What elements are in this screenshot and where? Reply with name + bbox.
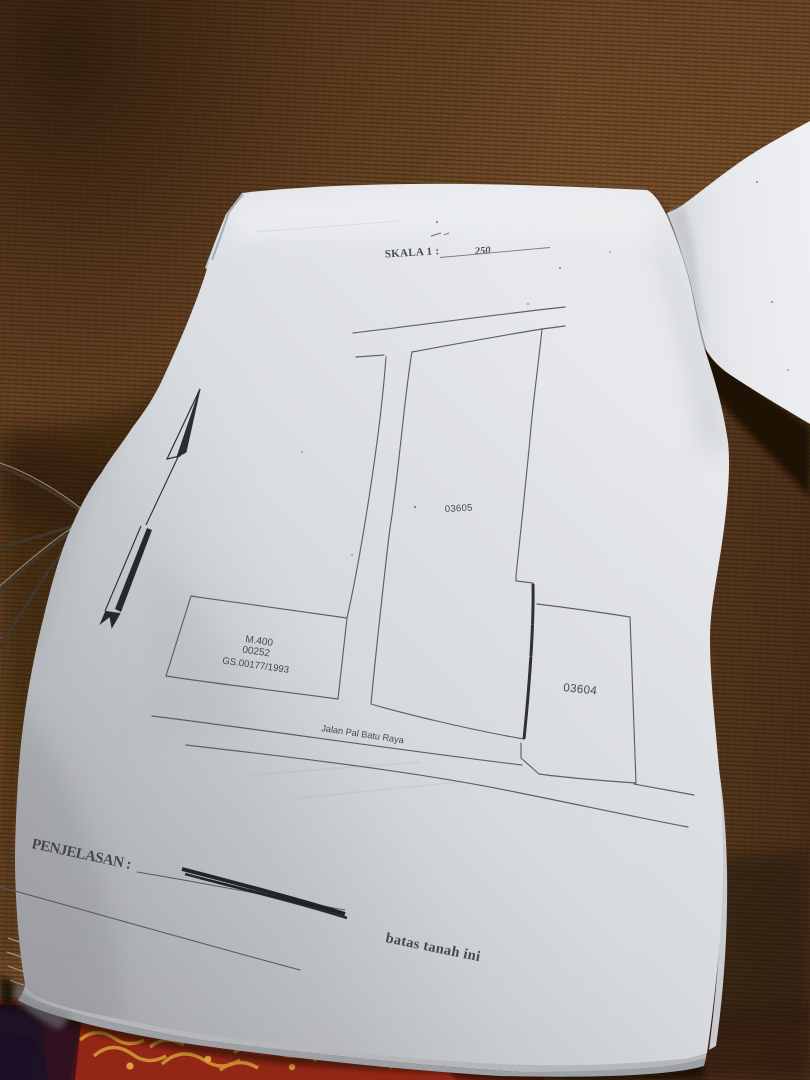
svg-text:03605: 03605 (445, 503, 473, 515)
svg-text:250: 250 (473, 245, 491, 257)
